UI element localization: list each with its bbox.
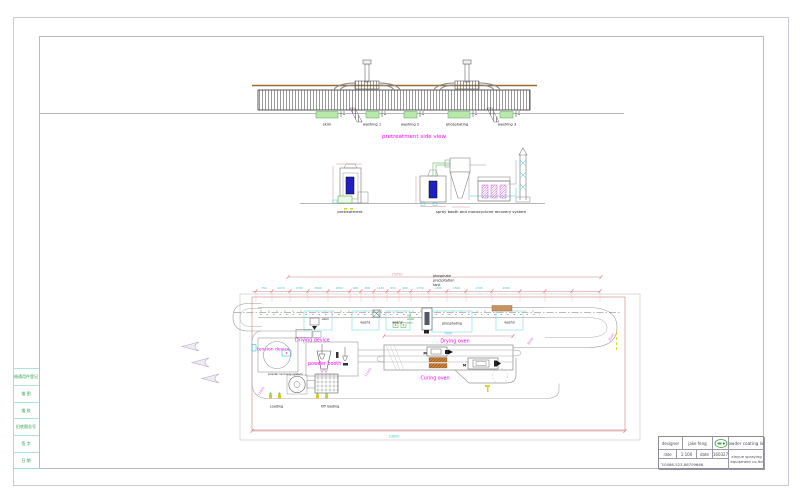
plan-label-phosphating: phosphating (442, 322, 462, 326)
seg-dim-13: 1745 (475, 286, 482, 290)
recovery-filter (315, 374, 338, 393)
tank-label-phosphating: phosphating (446, 123, 468, 127)
tank-washing3 (500, 112, 513, 119)
burner-duct-2 (429, 364, 447, 369)
date-label: date (697, 450, 713, 459)
diag-dim-0: 8000 (527, 337, 535, 346)
phone-number: T:0086-523-86709666 (659, 459, 729, 470)
company-name-line2: equipment co.ltd (730, 460, 762, 465)
designer-value: jake feng (683, 437, 713, 450)
tension-device (252, 338, 298, 372)
cad-drawing: skim washing 1 washing 2 phosphating was… (0, 0, 800, 493)
seg-dim-7: 1445 (377, 286, 384, 290)
flow-arrow-3 (202, 374, 219, 383)
diag-dim-1: 11000 (364, 367, 373, 378)
rate-value: 1:100 (677, 450, 697, 459)
phosphate-note: phosphate precipitation tank (433, 274, 454, 287)
pretreatment-side-view: skim washing 1 washing 2 phosphating was… (40, 60, 624, 140)
title-block: designer jake feng powder coating line r… (658, 436, 764, 469)
tank-skim (316, 112, 338, 119)
tank-phosphating (448, 112, 470, 119)
revision-strip: 借通用件登记 描 图 描 校 旧底图总号 签 字 日 期 (13, 368, 39, 469)
tank-label-washing2: washing 2 (401, 123, 419, 127)
drying-oven-label: Drying oven (440, 339, 469, 345)
exhaust-stack (516, 148, 530, 202)
bottom-dim: 23000 (389, 435, 400, 439)
company-name: xinyue spraying equipment co.ltd (729, 450, 765, 470)
plan-label-skim: skim (322, 317, 329, 321)
curing-burner (468, 358, 498, 369)
tank-label-washing3: washing 3 (498, 123, 516, 127)
plan-tanks: skim wash1 wash2 phosphating wash3 hot w… (304, 306, 523, 334)
seg-dim-5: 900 (353, 286, 359, 290)
powder-recovery-system (287, 374, 338, 394)
seg-dim-10: 1700 (416, 286, 423, 290)
seg-dim-3: 3000 (314, 286, 321, 290)
seg-dim-0: 750 (261, 286, 267, 290)
strip-row-date: 日 期 (13, 452, 39, 469)
flow-arrow-2 (192, 358, 209, 367)
diag-dim-2: 11000 (257, 386, 266, 397)
driving-device-label: Driving device (295, 338, 330, 344)
hot-water-line-3: tank (407, 321, 413, 325)
curing-oven: M (455, 358, 516, 392)
seg-dim-9: 900 (402, 286, 408, 290)
overall-dim-bottom: 23000 (251, 429, 627, 439)
logo-icon (714, 438, 728, 449)
tank-washing2 (404, 112, 417, 119)
strip-row-signature: 签 字 (13, 435, 39, 452)
pretreatment-tunnel (258, 90, 530, 110)
powder-pipe-green (433, 163, 452, 176)
strip-row-trace-check: 描 校 (13, 402, 39, 419)
powder-recovery-label: powder recovery system (268, 372, 303, 376)
platform (492, 306, 512, 312)
cyclone-cone (450, 172, 470, 198)
pretreatment-section-label: pretreatment (337, 209, 363, 214)
booth-workpiece-blue (429, 181, 437, 198)
hanger-2 (343, 347, 348, 361)
plan-label-wash2: wash2 (392, 321, 402, 325)
strip-row-borrow-record: 借通用件登记 (13, 368, 39, 385)
product-name: powder coating line (729, 437, 765, 450)
filter-cartridge-3 (500, 185, 506, 198)
plan-label-wash3: wash3 (504, 321, 514, 325)
plan-label-wash1: wash1 (360, 321, 370, 325)
company-logo (713, 437, 729, 450)
curing-oven-label: Curing oven (420, 376, 449, 382)
tension-wheel (264, 342, 291, 369)
powder-booth-outline (306, 342, 358, 376)
drawing-sheet: skim washing 1 washing 2 phosphating was… (0, 0, 800, 493)
skim-valve (312, 326, 317, 330)
diag-dim-3: 8000 (608, 333, 616, 342)
off-loading-label: Off loading (321, 405, 340, 409)
stack-arrow (519, 148, 527, 155)
seg-dim-6: 800 (365, 286, 371, 290)
burner-duct-1 (429, 358, 447, 363)
drying-burner (427, 347, 447, 356)
after-filter-unit (470, 160, 516, 201)
seg-dim-14: 2000 (502, 286, 509, 290)
filter-cartridge-2 (491, 185, 497, 198)
loading-label: Loading (270, 405, 283, 409)
seg-dim-1: 2270 (277, 286, 284, 290)
filter-cartridge-1 (482, 185, 488, 198)
hot-water-line-1: hot (407, 314, 411, 318)
powder-booth-area (306, 342, 358, 376)
pretreatment-section (333, 164, 368, 210)
tension-device-label: tension device (257, 347, 290, 353)
oven-dim: 7000 (444, 332, 452, 336)
side-view-title: pretreatment side view (382, 134, 447, 140)
workpiece-blue (346, 177, 354, 194)
plan-view: 25050 750 2270 1700 3000 1950 900 800 14… (182, 273, 640, 441)
date-value: 160327 (713, 450, 729, 459)
motor-label-curing: M (463, 364, 467, 368)
note-line-2: precipitation (433, 279, 454, 283)
spray-booth-section-label: spray booth and monocyclone recovery sys… (436, 209, 527, 214)
tank-washing1 (366, 112, 379, 119)
spray-booth-section (420, 163, 452, 206)
tank-label-skim: skim (323, 123, 332, 127)
hot-water-line-2: water (407, 317, 415, 321)
seg-dim-12: 1500 (453, 286, 460, 290)
powder-booth-label: powder booth (308, 361, 341, 367)
total-length-dim: 25050 (392, 273, 403, 277)
designer-label: designer (659, 437, 683, 450)
flow-arrow-1 (182, 342, 199, 351)
seg-dim-2: 1700 (295, 286, 302, 290)
hanger-1 (319, 344, 325, 359)
dim-ticks (255, 289, 602, 293)
note-line-1: phosphate (433, 274, 451, 278)
strip-row-old-base-no: 旧底图总号 (13, 418, 39, 435)
loading-stations (269, 393, 328, 399)
note-line-3: tank (433, 283, 441, 287)
rate-label: rate (659, 450, 677, 459)
strip-row-tracing: 描 图 (13, 385, 39, 402)
recovery-cyclone (289, 376, 305, 392)
elevation-views: pretreatment spray booth and monocyclone… (300, 148, 545, 214)
seg-dim-4: 1950 (335, 286, 342, 290)
flow-arrows (182, 342, 219, 383)
tank-label-washing1: washing 1 (363, 123, 381, 127)
skim-pump (310, 318, 319, 325)
seg-dim-8: 650 (390, 286, 396, 290)
